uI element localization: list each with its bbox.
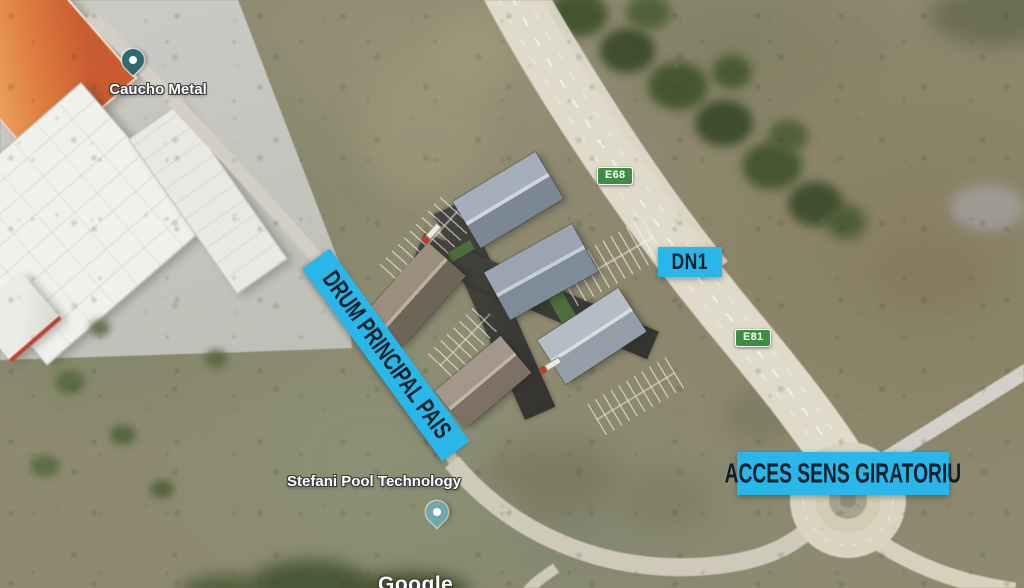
route-badge-e81: E81 (735, 329, 771, 347)
map-canvas[interactable]: Caucho Metal Stefani Pool Technology E68… (0, 0, 1024, 588)
route-badge-e68: E68 (597, 167, 633, 185)
annotation-roundabout-banner: ACCES SENS GIRATORIU (737, 452, 949, 495)
place-label-caucho-metal[interactable]: Caucho Metal (78, 81, 238, 98)
google-watermark: Google (378, 573, 453, 588)
place-label-stefani-pool[interactable]: Stefani Pool Technology (274, 473, 474, 490)
annotation-road-name: DN1 (658, 247, 722, 277)
